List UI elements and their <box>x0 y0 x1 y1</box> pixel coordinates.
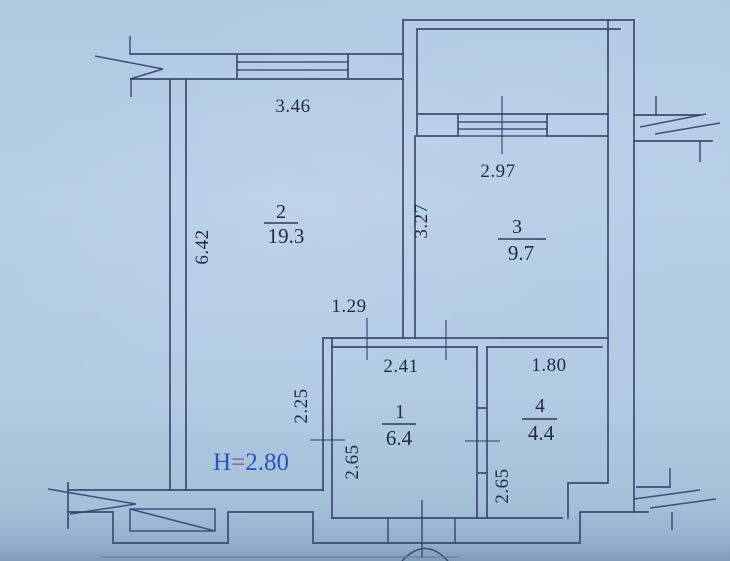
room3-number-label: 3 <box>512 216 522 238</box>
dim-room2-width: 3.46 <box>275 96 310 117</box>
partition-hall-top <box>323 338 608 347</box>
break-marks <box>48 36 720 530</box>
stair-hatch-icon <box>130 509 215 531</box>
partition-room1-room4 <box>477 347 487 518</box>
break-mark-bottom-right-icon <box>634 468 716 530</box>
break-mark-bottom-left-icon <box>48 489 136 514</box>
dim-room2-side: 6.42 <box>192 229 213 264</box>
window-top-icon <box>237 62 348 70</box>
height-equals: = <box>231 449 245 476</box>
dimension-ticks <box>310 96 502 441</box>
wall-right <box>568 20 634 518</box>
floor-plan-photo: 3.46 6.42 2.97 3.27 1.29 2.41 1.80 2.25 … <box>0 0 730 561</box>
dim-room3-width: 2.97 <box>480 161 515 182</box>
room4-number-label: 4 <box>535 395 545 417</box>
room3-area-label: 9.7 <box>508 241 534 265</box>
walls <box>68 20 712 543</box>
ceiling-height-label: H=2.80 <box>213 449 289 476</box>
wall-stub-right-top <box>634 115 712 141</box>
exterior-wall-top <box>130 54 403 79</box>
door-swing-arc-icon <box>402 549 448 561</box>
dim-room3-side: 3.27 <box>411 203 432 238</box>
balcony-walls <box>403 20 634 338</box>
labels: 3.46 6.42 2.97 3.27 1.29 2.41 1.80 2.25 … <box>192 96 567 504</box>
room2-number-label: 2 <box>276 201 286 223</box>
floor-plan-drawing: 3.46 6.42 2.97 3.27 1.29 2.41 1.80 2.25 … <box>0 0 730 561</box>
partition-hall-left <box>323 338 332 518</box>
dim-room4-side: 2.65 <box>492 468 513 503</box>
wall-left <box>170 79 186 490</box>
room1-number-label: 1 <box>395 401 405 423</box>
dim-room2-lower-side: 2.25 <box>291 388 312 423</box>
dim-room1-width: 2.41 <box>383 356 418 377</box>
room2-area-label: 19.3 <box>268 224 305 248</box>
break-mark-top-left-icon <box>95 36 163 97</box>
height-value: 2.80 <box>245 449 289 476</box>
room1-area-label: 6.4 <box>386 426 413 450</box>
room4-area-label: 4.4 <box>528 421 555 445</box>
break-mark-top-right-icon <box>640 96 720 162</box>
symbols <box>130 500 455 561</box>
dim-room4-width: 1.80 <box>531 355 566 376</box>
dim-hall-top-offset: 1.29 <box>331 296 366 317</box>
dim-room1-side: 2.65 <box>342 444 363 479</box>
height-symbol: H <box>213 449 231 476</box>
exterior-wall-bottom <box>68 483 648 543</box>
